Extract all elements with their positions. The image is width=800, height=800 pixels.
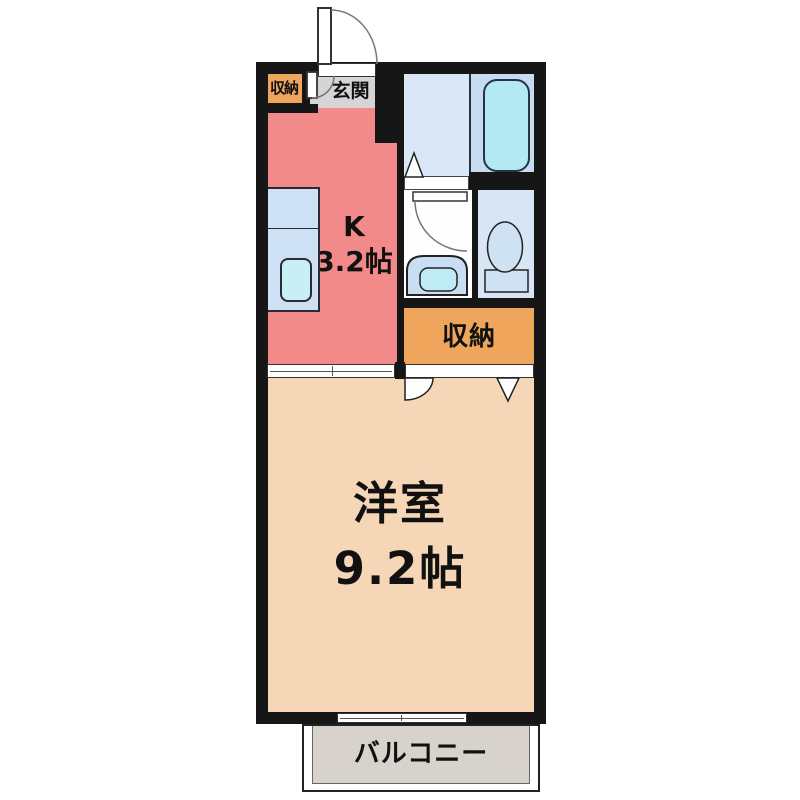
wall-closet-door-stub [302,70,310,106]
entrance-closet: 収納 [262,70,306,106]
floor-plan: 玄関 収納 K 3.2帖 収納 洋室 9.2帖 バルコニー [0,0,800,800]
bath-threshold [404,176,469,190]
window-meet-tick [401,715,402,721]
kitchen-counter-divider [268,228,318,229]
sliding-door-track-line [270,371,392,372]
wall-storage-top [404,298,534,308]
balcony-window [337,713,467,723]
kitchen-counter [266,187,320,312]
bathroom-washing-area [404,74,469,176]
wall-right [534,62,546,724]
kitchen-sliding-door [267,364,395,378]
entrance-room: 玄関 [308,72,375,112]
balcony: バルコニー [302,724,540,792]
washroom [404,190,472,298]
balcony-floor: バルコニー [312,726,530,784]
wall-mid-vertical [397,62,404,364]
bathtub [483,79,530,172]
storage-door-track [405,364,534,378]
entry-door-sill [318,63,376,77]
entry-door-leaf [318,8,331,64]
western-room: 洋室 9.2帖 [266,378,534,712]
entrance-label: 玄関 [326,72,375,112]
entry-door-swing-arc [331,10,377,64]
storage-room: 収納 [404,308,534,366]
window-track-line [340,718,464,719]
toilet-room [478,190,534,298]
wall-pier-center [395,362,405,379]
wall-left [256,62,268,724]
entrance-closet-label: 収納 [265,73,303,103]
western-room-label: 洋室 9.2帖 [266,466,534,606]
kitchen-sink [280,258,312,302]
wall-washroom-toilet [472,190,478,302]
wall-under-tub [469,172,534,190]
sliding-door-meet-tick [332,366,333,376]
storage-label: 収納 [404,308,534,366]
